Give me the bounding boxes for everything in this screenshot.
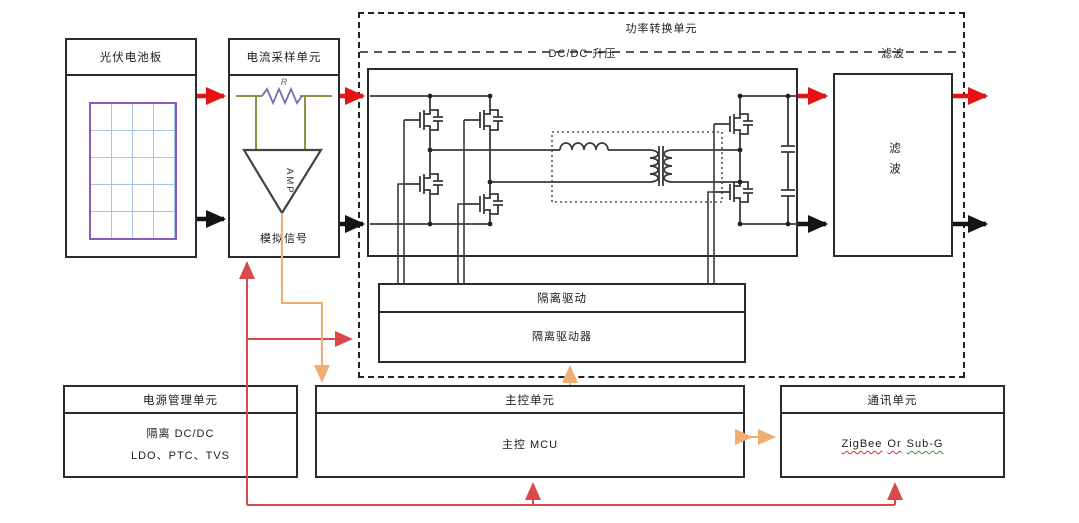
communication-block: 通讯单元 ZigBee Or Sub-G (780, 385, 1005, 478)
filter-header-label: 滤波 (833, 45, 953, 61)
pv-panel-icon (89, 102, 177, 240)
isolated-drive-label: 隔离驱动 (380, 285, 744, 313)
radio-zigbee-label: ZigBee (842, 438, 883, 450)
power-management-block: 电源管理单元 隔离 DC/DC LDO、PTC、TVS (63, 385, 298, 478)
power-management-title: 电源管理单元 (65, 387, 296, 414)
filter-body-label: 滤波 (886, 142, 902, 183)
communication-body: ZigBee Or Sub-G (782, 414, 1003, 474)
pv-block-title: 光伏电池板 (67, 40, 195, 76)
communication-title: 通讯单元 (782, 387, 1003, 414)
main-control-title: 主控单元 (317, 387, 743, 414)
analog-signal-label: 模拟信号 (228, 230, 340, 246)
radio-subg-label: Sub-G (907, 438, 944, 450)
radio-or-label: Or (887, 438, 901, 450)
current-sampling-title: 电流采样单元 (230, 40, 338, 76)
isolated-driver-label: 隔离驱动器 (380, 313, 744, 359)
power-management-line2: LDO、PTC、TVS (131, 447, 230, 463)
power-management-line1: 隔离 DC/DC (147, 425, 215, 441)
current-sampling-block: 电流采样单元 (228, 38, 340, 258)
dcdc-boost-block (367, 68, 798, 257)
pv-block: 光伏电池板 (65, 38, 197, 258)
power-conversion-title: 功率转换单元 (358, 20, 965, 36)
main-control-mcu-label: 主控 MCU (317, 414, 743, 474)
isolated-driver-block: 隔离驱动 隔离驱动器 (378, 283, 746, 363)
main-control-block: 主控单元 主控 MCU (315, 385, 745, 478)
system-block-diagram: 光伏电池板 电流采样单元 模拟信号 功率转换单元 DC/DC 升压 滤波 滤波 … (0, 0, 1079, 523)
dcdc-boost-label: DC/DC 升压 (367, 45, 798, 61)
